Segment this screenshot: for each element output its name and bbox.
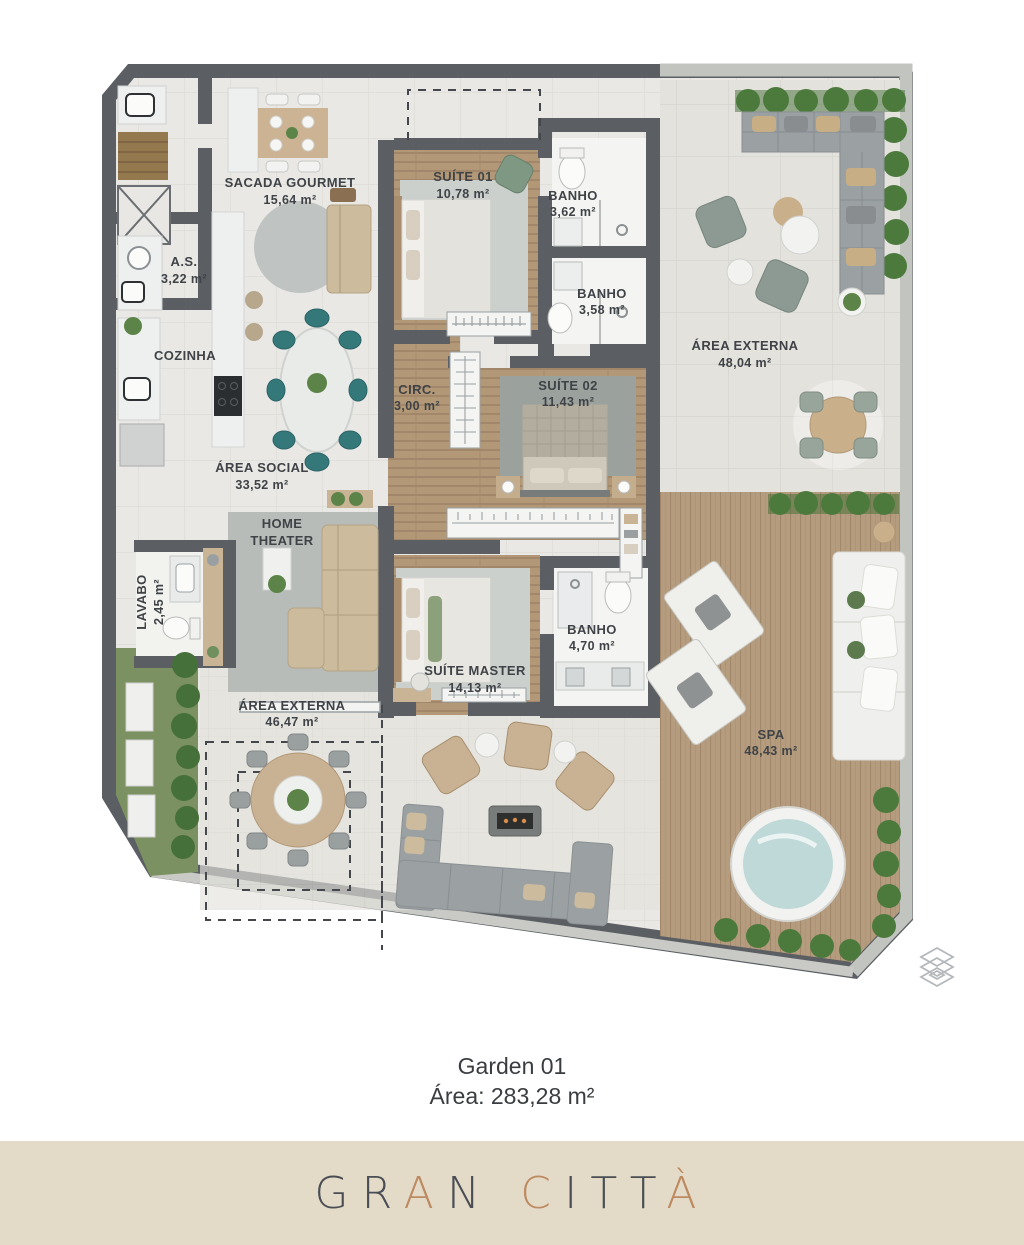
- lavabo-sink: [176, 564, 194, 592]
- hedge-top: [735, 87, 906, 113]
- label-cozinha: COZINHA: [154, 348, 216, 363]
- label-circ-area: 3,00 m²: [394, 399, 440, 413]
- plan-caption: Garden 01 Área: 283,28 m²: [0, 1052, 1024, 1112]
- label-banho1-area: 3,62 m²: [550, 205, 596, 219]
- pillow: [406, 588, 420, 618]
- shelf-item: [624, 514, 638, 524]
- cushion: [816, 116, 840, 132]
- planter-plant: [349, 492, 363, 506]
- chair: [854, 438, 877, 458]
- as-cabinet: [122, 282, 144, 302]
- label-externa-bottom-name: ÁREA EXTERNA: [239, 698, 346, 713]
- lamp: [618, 481, 630, 493]
- master-headboard: [394, 578, 402, 682]
- label-sacada-name: SACADA GOURMET: [225, 175, 356, 190]
- chair: [854, 392, 877, 412]
- fridge: [120, 424, 164, 466]
- label-home-theater-2: THEATER: [250, 533, 313, 548]
- shelf-item: [624, 544, 638, 554]
- kitchen-plant: [124, 317, 142, 335]
- suite01-duvet: [424, 200, 490, 318]
- label-lavabo-name: LAVABO: [134, 574, 149, 629]
- plant-pot: [207, 646, 219, 658]
- sink: [612, 668, 630, 686]
- chair: [800, 392, 823, 412]
- green-throw: [428, 596, 442, 662]
- washer: [128, 247, 150, 269]
- shaft-hatch-box: [118, 132, 168, 180]
- pillow: [406, 630, 420, 660]
- coffee-table: [781, 216, 819, 254]
- label-banho1-name: BANHO: [548, 188, 598, 203]
- cushion: [784, 116, 808, 132]
- externa-bottom-furniture: [230, 734, 366, 866]
- side-table: [727, 259, 753, 285]
- cushion: [846, 248, 876, 266]
- planter-plant: [331, 492, 345, 506]
- toilet-tank: [606, 572, 630, 582]
- label-circ-name: CIRC.: [398, 382, 435, 397]
- plate: [302, 139, 314, 151]
- lounge-armchair: [503, 721, 553, 771]
- label-master-area: 14,13 m²: [448, 681, 501, 695]
- label-externa-top-name: ÁREA EXTERNA: [692, 338, 799, 353]
- table-plant: [287, 789, 309, 811]
- label-externa-top-area: 48,04 m²: [718, 356, 771, 370]
- chair: [266, 161, 288, 172]
- plan-area-total: Área: 283,28 m²: [0, 1082, 1024, 1112]
- label-home-theater-1: HOME: [262, 516, 303, 531]
- plate: [302, 116, 314, 128]
- toilet: [548, 303, 572, 333]
- speaker: [207, 554, 219, 566]
- shelf-item: [624, 530, 638, 538]
- floor-plan: SACADA GOURMET 15,64 m² A.S. 3,22 m² COZ…: [0, 0, 1024, 1000]
- suite01-headboard: [394, 196, 402, 320]
- lavabo-toilet: [163, 617, 189, 639]
- planter-bench: [128, 795, 155, 837]
- plant: [843, 293, 861, 311]
- kitchen-counter: [118, 318, 160, 420]
- label-as-area: 3,22 m²: [161, 272, 207, 286]
- label-banho-master-name: BANHO: [567, 622, 617, 637]
- label-master-name: SUÍTE MASTER: [424, 663, 526, 678]
- label-banho2-name: BANHO: [577, 286, 627, 301]
- label-spa-name: SPA: [758, 727, 785, 742]
- pillow: [406, 210, 420, 240]
- theater-chaise: [288, 608, 324, 668]
- laundry-sink: [126, 94, 154, 116]
- label-social-name: ÁREA SOCIAL: [215, 460, 308, 475]
- label-suite01-area: 10,78 m²: [436, 187, 489, 201]
- label-lavabo-area: 2,45 m²: [152, 579, 166, 625]
- plate: [270, 139, 282, 151]
- toilet: [559, 155, 585, 189]
- cushion: [850, 116, 876, 132]
- toilet-tank: [190, 618, 200, 639]
- label-as-name: A.S.: [171, 254, 198, 269]
- social-furniture: [267, 309, 367, 471]
- label-suite02-name: SUÍTE 02: [538, 378, 598, 393]
- cushion: [846, 206, 876, 224]
- toilet: [605, 579, 631, 613]
- hedge-deck-top: [768, 491, 899, 515]
- lamp: [502, 481, 514, 493]
- spa-tub: [731, 807, 845, 921]
- toilet-tank: [560, 148, 584, 158]
- fire-pit-table: [489, 806, 541, 836]
- cushion: [846, 168, 876, 186]
- chair: [800, 438, 823, 458]
- label-sacada-area: 15,64 m²: [263, 193, 316, 207]
- deck-side-table: [873, 521, 895, 543]
- pillow: [568, 468, 602, 483]
- floor-plan-svg: SACADA GOURMET 15,64 m² A.S. 3,22 m² COZ…: [0, 0, 1024, 1000]
- bar-stool: [245, 291, 263, 309]
- sacada-side-table: [330, 188, 356, 202]
- label-spa-area: 48,43 m²: [744, 744, 797, 758]
- chair: [266, 94, 288, 105]
- label-banho2-area: 3,58 m²: [579, 303, 625, 317]
- planter-bench: [126, 683, 153, 731]
- sacada-sofa: [327, 205, 371, 293]
- plan-title: Garden 01: [0, 1052, 1024, 1082]
- plate: [270, 116, 282, 128]
- side-table: [554, 741, 576, 763]
- suite02-headboard: [520, 490, 610, 497]
- master-desk: [393, 688, 431, 702]
- chair: [298, 161, 320, 172]
- side-table: [475, 733, 499, 757]
- brand-band: GRAN CITTÀ: [0, 1141, 1024, 1245]
- chair: [298, 94, 320, 105]
- suite01-wardrobe: [447, 312, 531, 336]
- cushion: [752, 116, 776, 132]
- bar-stool: [245, 323, 263, 341]
- cooktop: [214, 376, 242, 416]
- quilted-daybed: [833, 552, 905, 760]
- layers-icon: [921, 948, 953, 986]
- page: SACADA GOURMET 15,64 m² A.S. 3,22 m² COZ…: [0, 0, 1024, 1245]
- gourmet-island: [228, 88, 258, 172]
- label-banho-master-area: 4,70 m²: [569, 639, 615, 653]
- media-table-plant: [268, 575, 286, 593]
- sink: [554, 218, 582, 246]
- theater-sofa: [322, 525, 378, 671]
- brand-logo: GRAN CITTÀ: [314, 1168, 709, 1219]
- label-suite02-area: 11,43 m²: [542, 395, 595, 409]
- label-externa-bottom-area: 46,47 m²: [265, 715, 318, 729]
- pillow: [530, 468, 564, 483]
- kitchen-sink: [124, 378, 150, 400]
- table-plant: [286, 127, 298, 139]
- pillow: [406, 250, 420, 280]
- label-social-area: 33,52 m²: [235, 478, 288, 492]
- dining-centerpiece-plant: [307, 373, 327, 393]
- sink: [566, 668, 584, 686]
- planter-bench: [126, 740, 153, 786]
- label-suite01-name: SUÍTE 01: [433, 169, 493, 184]
